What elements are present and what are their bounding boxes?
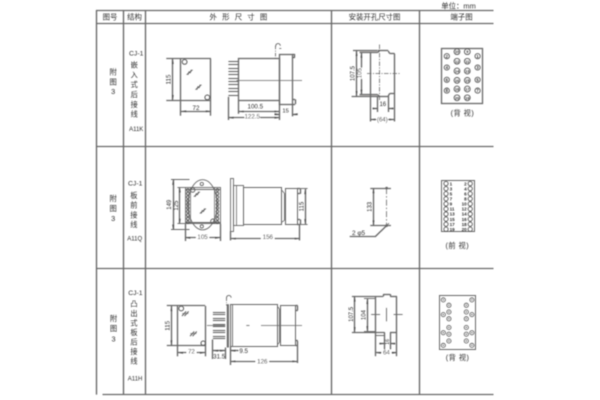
svg-text:后: 后	[130, 338, 137, 347]
svg-text:结构: 结构	[127, 13, 142, 22]
svg-text:式: 式	[130, 319, 137, 328]
svg-text:115: 115	[164, 320, 171, 330]
svg-text:板: 板	[130, 328, 137, 337]
svg-text:17: 17	[465, 87, 469, 92]
svg-text:后: 后	[131, 90, 138, 99]
svg-text:122.5: 122.5	[244, 113, 260, 120]
svg-text:126: 126	[257, 358, 268, 365]
svg-text:16: 16	[379, 102, 386, 108]
svg-text:15: 15	[282, 109, 289, 115]
svg-text:接: 接	[131, 100, 138, 109]
svg-text:A11K: A11K	[129, 127, 143, 133]
svg-text:31.5: 31.5	[213, 353, 226, 360]
svg-text:A11H: A11H	[128, 377, 143, 383]
svg-text:104: 104	[362, 309, 368, 320]
svg-text:100.5: 100.5	[248, 104, 264, 111]
svg-text:107.5: 107.5	[349, 306, 355, 322]
svg-text:(背 视): (背 视)	[446, 353, 470, 362]
svg-text:出: 出	[130, 309, 137, 318]
svg-text:图: 图	[110, 78, 117, 87]
svg-text:115: 115	[299, 201, 305, 211]
svg-text:式: 式	[131, 80, 138, 89]
svg-text:107.5: 107.5	[350, 65, 356, 81]
svg-text:CJ-1: CJ-1	[128, 290, 143, 297]
svg-text:105: 105	[357, 68, 363, 79]
svg-text:附: 附	[110, 314, 118, 323]
svg-text:19: 19	[450, 227, 456, 232]
svg-text:接: 接	[130, 347, 137, 356]
svg-text:嵌: 嵌	[131, 60, 138, 69]
svg-text:安装开孔尺寸图: 安装开孔尺寸图	[349, 13, 401, 22]
svg-text:20: 20	[455, 95, 459, 100]
svg-text:线: 线	[130, 357, 137, 366]
svg-text:64: 64	[383, 350, 390, 357]
svg-text:20: 20	[462, 227, 468, 232]
svg-text:附: 附	[110, 68, 118, 77]
svg-text:9.5: 9.5	[239, 348, 248, 355]
svg-text:(背 视): (背 视)	[451, 108, 475, 117]
svg-text:附: 附	[110, 194, 118, 203]
svg-text:10: 10	[455, 49, 459, 54]
svg-text:125: 125	[174, 200, 180, 211]
svg-text:图: 图	[110, 324, 117, 333]
svg-text:端子图: 端子图	[450, 13, 472, 22]
svg-text:前: 前	[130, 201, 137, 210]
svg-text:接: 接	[130, 210, 137, 219]
svg-text:A11Q: A11Q	[127, 236, 142, 242]
svg-text:105: 105	[197, 234, 208, 241]
svg-text:入: 入	[131, 70, 138, 79]
svg-text:72: 72	[188, 349, 195, 356]
svg-text:线: 线	[130, 220, 137, 229]
svg-text:3: 3	[111, 214, 115, 223]
svg-text:CJ-1: CJ-1	[129, 51, 144, 58]
svg-text:9: 9	[466, 49, 469, 54]
svg-text:图号: 图号	[103, 13, 118, 22]
svg-text:156: 156	[263, 234, 274, 241]
svg-text:CJ-1: CJ-1	[128, 180, 143, 187]
svg-text:2 φ5: 2 φ5	[352, 230, 365, 237]
svg-text:149: 149	[167, 199, 173, 210]
svg-text:图: 图	[110, 204, 117, 213]
svg-text:外形尺寸图: 外形尺寸图	[210, 13, 273, 22]
svg-text:板: 板	[130, 191, 137, 200]
svg-text:133: 133	[368, 201, 374, 212]
svg-text:115: 115	[166, 74, 173, 84]
svg-text:凸: 凸	[130, 300, 137, 309]
svg-text:72: 72	[193, 105, 200, 112]
svg-text:3: 3	[111, 335, 115, 344]
svg-text:(64): (64)	[377, 117, 388, 123]
svg-text:线: 线	[131, 110, 138, 119]
svg-text:(前 视): (前 视)	[445, 241, 469, 250]
svg-text:16: 16	[385, 339, 391, 345]
svg-text:单位：mm: 单位：mm	[441, 1, 476, 10]
svg-text:3: 3	[111, 87, 115, 96]
